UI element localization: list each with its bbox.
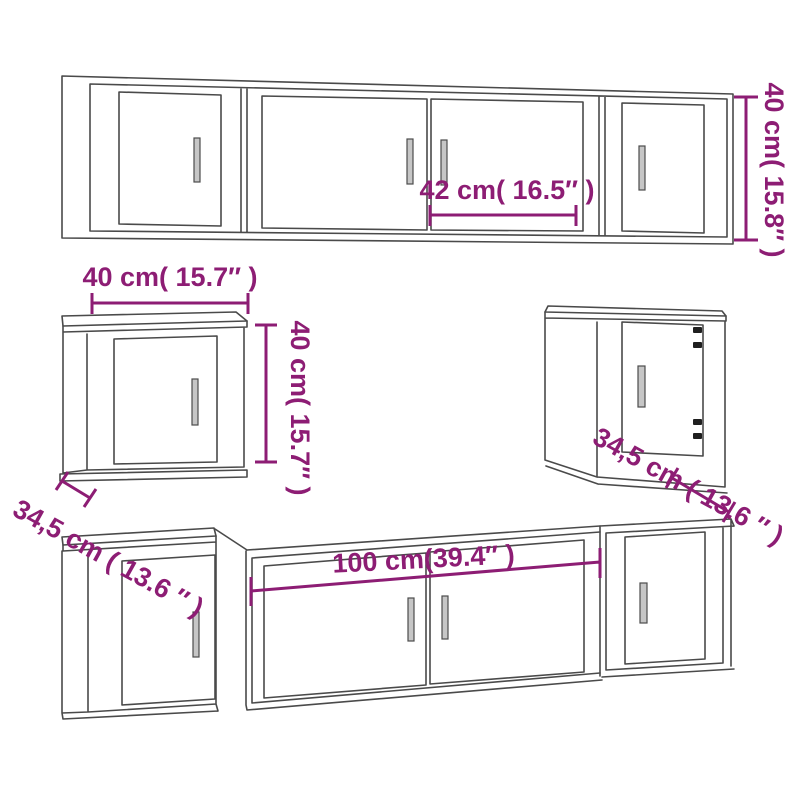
mid-left-door: [114, 336, 217, 464]
door-handle: [442, 596, 448, 639]
door-handle: [638, 366, 645, 407]
dim-label-top-row-height: 40 cm( 15.8″ ): [759, 82, 789, 257]
door-handle: [408, 598, 414, 641]
hinge-mark: [693, 419, 702, 425]
mid-right-door: [622, 322, 703, 456]
hinge-mark: [693, 433, 702, 439]
bottom-right-door: [625, 532, 705, 664]
product-dimension-image: 42 cm( 16.5″ ) 40 cm( 15.8″ ) 40 cm( 15.…: [0, 0, 800, 800]
door-handle: [640, 583, 647, 623]
dim-label-top-door-width: 42 cm( 16.5″ ): [419, 175, 594, 205]
hinge-mark: [693, 327, 702, 333]
dim-label-square-height: 40 cm( 15.7″ ): [285, 320, 315, 495]
top-left-door: [119, 92, 221, 226]
door-handle: [639, 146, 645, 190]
top-right-door: [622, 103, 704, 233]
dimension-diagram: 42 cm( 16.5″ ) 40 cm( 15.8″ ) 40 cm( 15.…: [0, 0, 800, 800]
top-center-door-right: [431, 99, 583, 231]
door-handle: [192, 379, 198, 425]
door-handle: [194, 138, 200, 182]
hinge-mark: [693, 342, 702, 348]
door-handle: [407, 139, 413, 184]
dim-label-square-width: 40 cm( 15.7″ ): [82, 262, 257, 292]
top-center-door-left: [262, 96, 427, 230]
